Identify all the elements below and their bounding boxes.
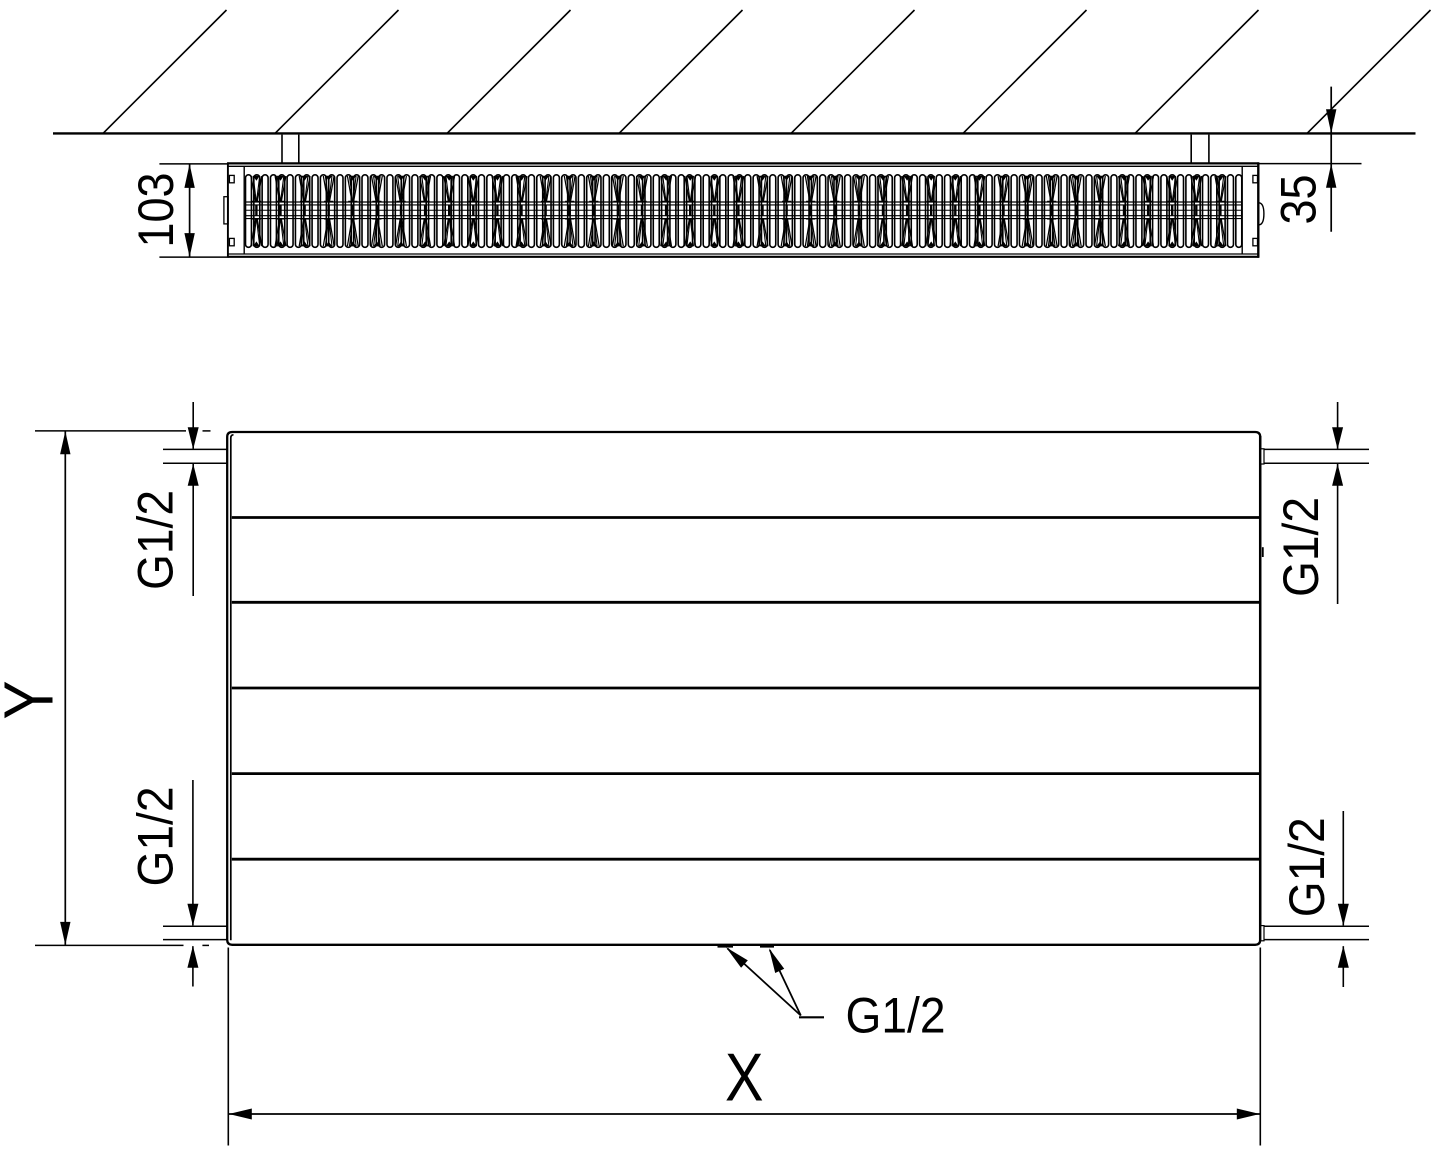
svg-text:Y: Y: [0, 681, 68, 720]
svg-text:X: X: [725, 1040, 764, 1116]
svg-text:35: 35: [1271, 175, 1327, 225]
svg-text:G1/2: G1/2: [128, 787, 184, 887]
svg-text:103: 103: [128, 173, 184, 248]
svg-text:G1/2: G1/2: [1279, 817, 1335, 917]
svg-text:G1/2: G1/2: [128, 490, 184, 590]
svg-text:G1/2: G1/2: [1273, 497, 1329, 597]
svg-text:G1/2: G1/2: [846, 988, 946, 1044]
